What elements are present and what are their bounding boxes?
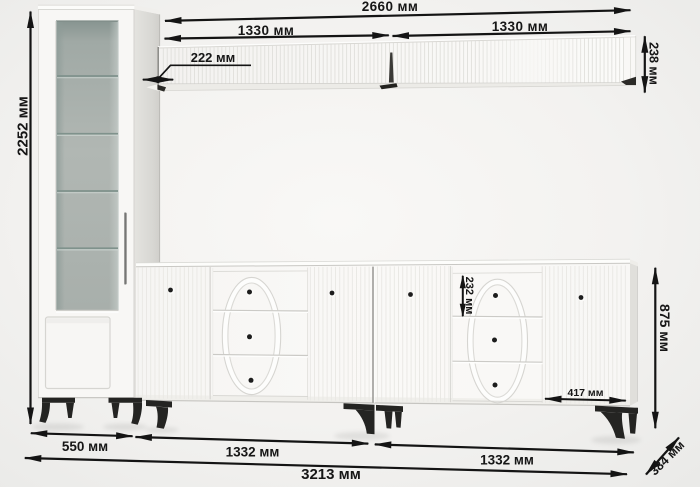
svg-text:2252 мм: 2252 мм	[15, 96, 32, 156]
svg-text:232 мм: 232 мм	[463, 277, 475, 315]
svg-text:417 мм: 417 мм	[568, 387, 604, 399]
svg-text:1330 мм: 1330 мм	[492, 19, 549, 34]
svg-text:1332 мм: 1332 мм	[226, 445, 280, 460]
svg-text:550 мм: 550 мм	[62, 439, 108, 454]
svg-text:238 мм: 238 мм	[647, 42, 661, 85]
svg-text:3213 мм: 3213 мм	[301, 466, 361, 483]
svg-text:875 мм: 875 мм	[657, 304, 673, 352]
svg-text:2660 мм: 2660 мм	[362, 0, 419, 14]
svg-text:222 мм: 222 мм	[191, 50, 236, 65]
svg-text:1330 мм: 1330 мм	[238, 23, 295, 38]
svg-text:1332 мм: 1332 мм	[480, 453, 534, 468]
